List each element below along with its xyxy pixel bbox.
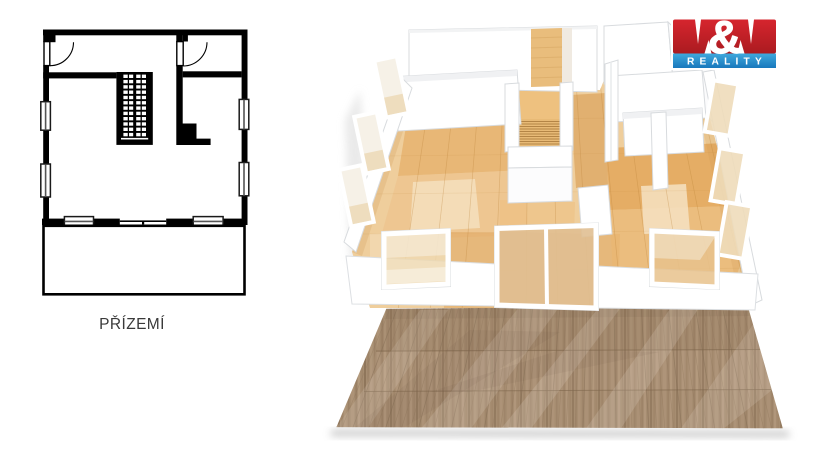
svg-text:REALITY: REALITY — [687, 57, 767, 68]
svg-text:PŘÍZEMÍ: PŘÍZEMÍ — [99, 316, 165, 333]
svg-text:&: & — [708, 11, 741, 63]
